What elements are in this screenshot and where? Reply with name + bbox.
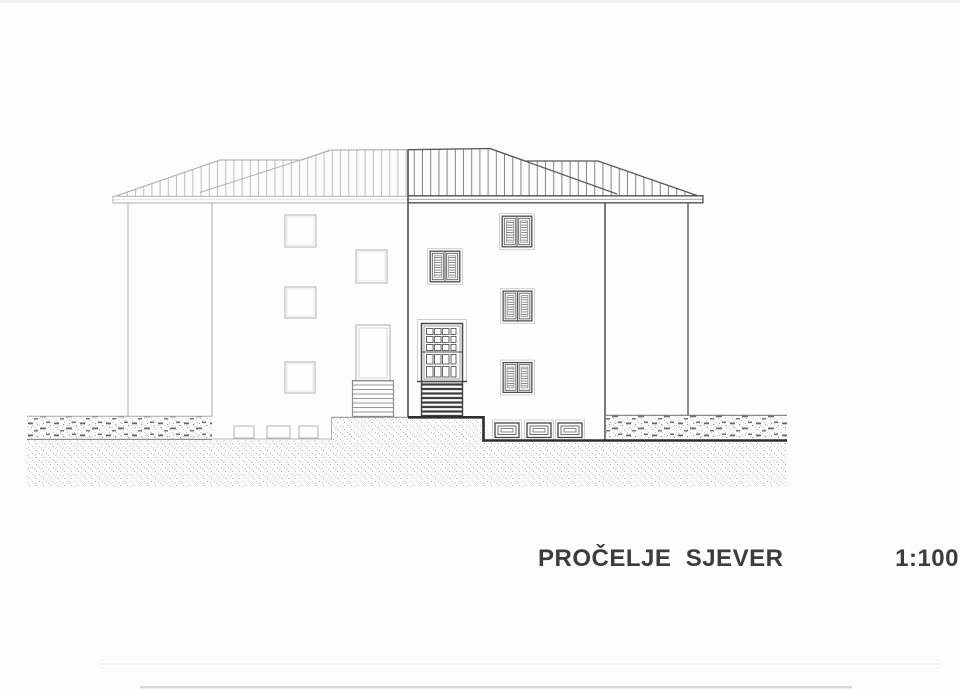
basement-vent-hatched — [493, 420, 585, 440]
scanned-elevation-sheet: PROČELJE SJEVER 1:100 — [0, 0, 960, 689]
drawing-scale: 1:100 — [895, 545, 959, 573]
eave-fascia-right — [408, 195, 703, 203]
shuttered-window — [501, 360, 535, 395]
drawing-title: PROČELJE SJEVER — [538, 545, 783, 573]
left-facade — [234, 215, 394, 438]
scan-artifacts — [0, 0, 960, 688]
entry-door — [417, 320, 467, 382]
gravel-band-right — [605, 415, 787, 440]
eave-fascia-left — [113, 196, 408, 204]
elevation-drawing — [0, 0, 960, 689]
plain-window — [285, 362, 315, 393]
shuttered-window — [500, 214, 535, 250]
terrain — [27, 415, 787, 486]
gravel-band-left — [27, 416, 212, 440]
right-facade — [417, 214, 585, 440]
raised-ground-center — [331, 417, 483, 440]
plain-window — [356, 250, 387, 283]
shuttered-window — [428, 249, 463, 285]
shuttered-window — [501, 289, 535, 324]
plain-window — [285, 287, 316, 318]
soil-band — [27, 440, 787, 486]
left-entry-stairs — [352, 381, 394, 417]
side-door — [353, 325, 393, 381]
plain-window — [285, 215, 316, 247]
basement-vent-plain — [234, 426, 318, 438]
titleblock: PROČELJE SJEVER 1:100 — [538, 545, 959, 575]
right-entry-stairs — [422, 382, 463, 418]
